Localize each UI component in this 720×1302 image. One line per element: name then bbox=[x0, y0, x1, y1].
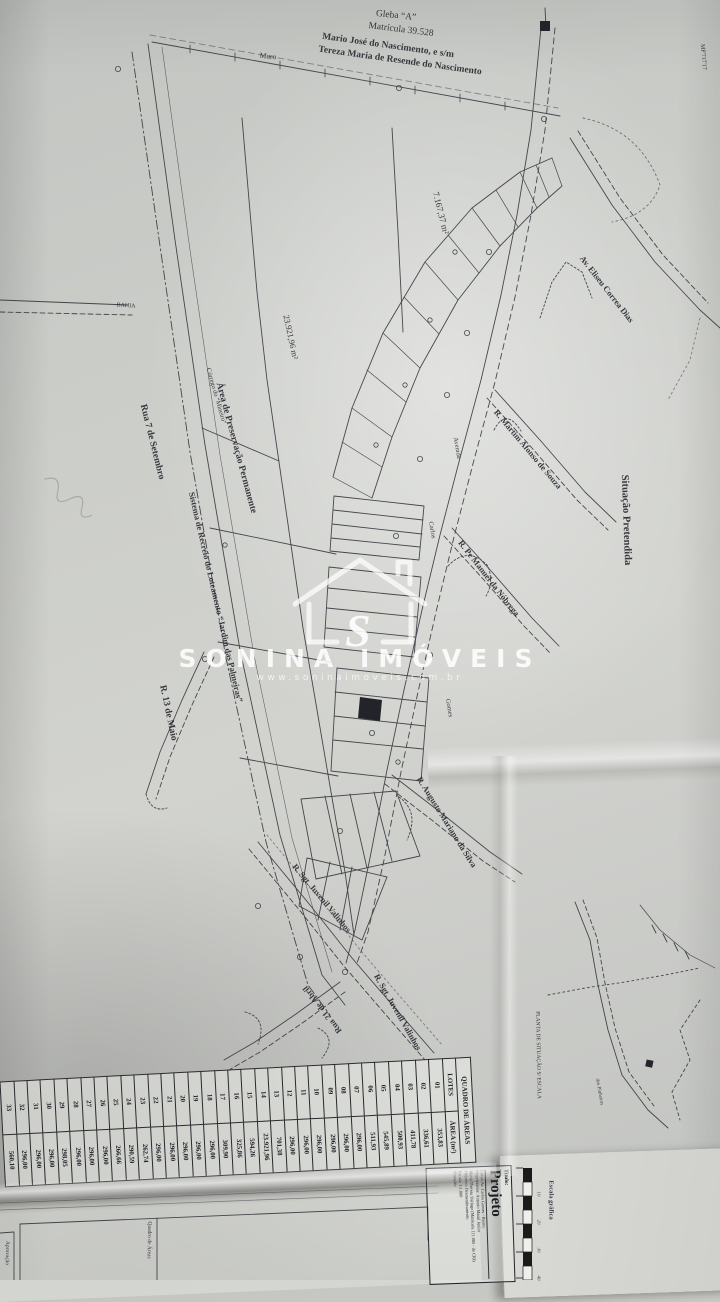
lot-number: 31 bbox=[27, 1080, 43, 1133]
lot-number: 15 bbox=[241, 1069, 257, 1122]
lot-area: 296,00 bbox=[43, 1132, 59, 1185]
lot-area: 296,00 bbox=[16, 1133, 32, 1186]
area-table-column: LOTES bbox=[442, 1058, 458, 1111]
lot-number: 11 bbox=[295, 1066, 311, 1119]
lot-number: 17 bbox=[214, 1070, 230, 1123]
lot-area: 325,86 bbox=[230, 1122, 246, 1175]
lot-number: 16 bbox=[228, 1069, 244, 1122]
lot-number: 26 bbox=[94, 1076, 110, 1129]
lot-area: 296,00 bbox=[324, 1117, 340, 1170]
lot-number: 06 bbox=[362, 1062, 378, 1115]
lot-number: 10 bbox=[308, 1065, 324, 1118]
lot-number: 12 bbox=[281, 1067, 297, 1120]
lot-number: 05 bbox=[375, 1062, 391, 1115]
lot-area: 296,00 bbox=[311, 1118, 327, 1171]
lot-number: 30 bbox=[40, 1079, 56, 1132]
lot-area: 296,00 bbox=[150, 1126, 166, 1179]
lot-area: 545,89 bbox=[378, 1114, 394, 1167]
lot-area: 296,00 bbox=[284, 1119, 300, 1172]
lot-area: 511,93 bbox=[364, 1115, 380, 1168]
lot-number: 27 bbox=[80, 1077, 96, 1130]
lot-number: 03 bbox=[402, 1060, 418, 1113]
lot-number: 07 bbox=[348, 1063, 364, 1116]
lot-area: 298,05 bbox=[56, 1131, 72, 1184]
lot-number: 22 bbox=[147, 1074, 163, 1127]
lot-area: 296,00 bbox=[338, 1116, 354, 1169]
lot-area: 262,74 bbox=[137, 1127, 153, 1180]
lot-number: 14 bbox=[255, 1068, 271, 1121]
lot-area: 411,78 bbox=[405, 1113, 421, 1166]
lot-area: 296,00 bbox=[177, 1125, 193, 1178]
lot-area: 296,00 bbox=[30, 1132, 46, 1185]
lot-area: 500,93 bbox=[391, 1113, 407, 1166]
lot-area: 296,00 bbox=[164, 1125, 180, 1178]
lot-area: 296,00 bbox=[97, 1129, 113, 1182]
lot-number: 19 bbox=[188, 1071, 204, 1124]
lot-number: 33 bbox=[0, 1081, 16, 1134]
lot-area: 594,26 bbox=[244, 1121, 260, 1174]
lot-area: 23.921,96 bbox=[257, 1120, 273, 1173]
lot-number: 32 bbox=[14, 1081, 30, 1134]
lot-area: 296,00 bbox=[297, 1118, 313, 1171]
lot-area: 296,00 bbox=[351, 1115, 367, 1168]
title-block: Título: Projeto Local: Av. Carlos Gomes … bbox=[425, 1165, 515, 1285]
graphic-scale-bar bbox=[516, 1168, 532, 1280]
lot-number: 01 bbox=[429, 1059, 445, 1112]
lot-area: 560,10 bbox=[3, 1134, 19, 1187]
area-table-column: ÁREA (m²) bbox=[445, 1111, 461, 1164]
lot-area: 296,00 bbox=[83, 1129, 99, 1182]
title-block-lines: Local: Av. Carlos Gomes - BairroPropriet… bbox=[452, 1169, 488, 1279]
lot-number: 24 bbox=[121, 1075, 137, 1128]
lot-area: 701,38 bbox=[271, 1120, 287, 1173]
lot-number: 21 bbox=[161, 1073, 177, 1126]
lot-area: 336,61 bbox=[418, 1112, 434, 1165]
lot-area: 290,59 bbox=[123, 1127, 139, 1180]
lot-number: 13 bbox=[268, 1067, 284, 1120]
lot-area: 353,83 bbox=[431, 1111, 447, 1164]
lot-area: 309,90 bbox=[217, 1122, 233, 1175]
lot-area: 296,00 bbox=[70, 1130, 86, 1183]
lot-number: 04 bbox=[388, 1061, 404, 1114]
lot-number: 08 bbox=[335, 1064, 351, 1117]
lot-number: 28 bbox=[67, 1078, 83, 1131]
lot-area: 266,66 bbox=[110, 1128, 126, 1181]
lot-area: 296,00 bbox=[190, 1124, 206, 1177]
lot-area: 296,00 bbox=[204, 1123, 220, 1176]
lot-number: 20 bbox=[174, 1072, 190, 1125]
lot-number: 23 bbox=[134, 1074, 150, 1127]
lot-number: 09 bbox=[321, 1064, 337, 1117]
lot-number: 18 bbox=[201, 1071, 217, 1124]
lot-number: 25 bbox=[107, 1076, 123, 1129]
lot-number: 29 bbox=[54, 1078, 70, 1131]
lot-number: 02 bbox=[415, 1060, 431, 1113]
